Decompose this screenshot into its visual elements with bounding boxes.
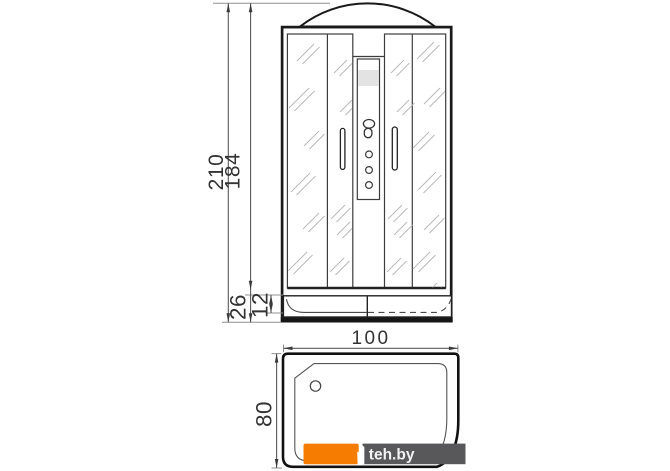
svg-text:184: 184	[221, 153, 244, 190]
svg-text:80: 80	[252, 401, 277, 427]
svg-text:12: 12	[248, 292, 273, 318]
svg-text:teh.by: teh.by	[369, 447, 415, 464]
svg-text:100: 100	[352, 328, 391, 349]
